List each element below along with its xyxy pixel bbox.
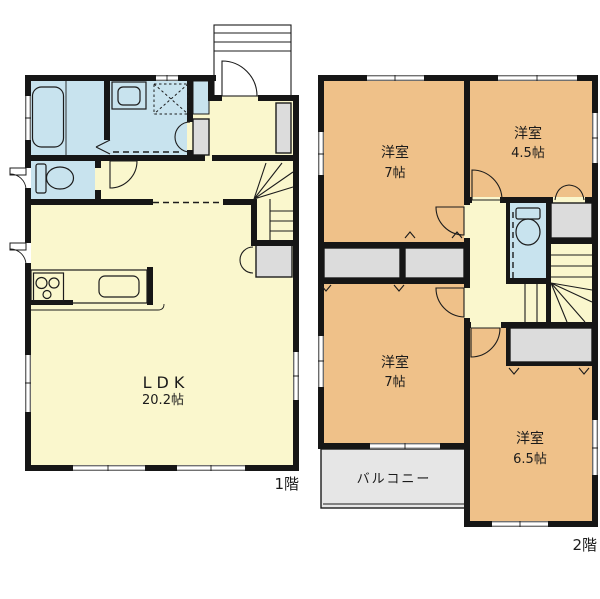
shoe-cabinet	[276, 103, 291, 153]
entrance-porch	[214, 25, 291, 96]
window	[73, 465, 145, 471]
room-sw-label: 洋室	[381, 354, 409, 371]
window	[367, 75, 424, 81]
window	[318, 336, 324, 387]
floor-1-plan: LDK 20.2帖 1階	[10, 25, 299, 493]
room-sw-size: 7帖	[384, 375, 405, 390]
window	[293, 352, 299, 400]
casement-window-icon	[10, 243, 31, 264]
casement-window-icon	[10, 168, 31, 189]
floor1-label: 1階	[274, 475, 299, 493]
closet-sw	[324, 248, 400, 278]
window	[370, 443, 440, 449]
room-nw-size: 7帖	[384, 166, 405, 181]
window	[25, 96, 31, 140]
room-ne-size: 4.5帖	[511, 146, 545, 161]
room-ne-label: 洋室	[514, 125, 542, 142]
window	[492, 521, 548, 527]
ldk-label: LDK	[143, 373, 190, 392]
hall-storage	[193, 119, 209, 155]
closet-nw	[405, 248, 464, 278]
window	[25, 355, 31, 412]
washroom-cabinet	[193, 81, 209, 114]
floor2-label: 2階	[572, 536, 597, 554]
floor-plan-canvas: LDK 20.2帖 1階	[0, 0, 600, 599]
closet-se	[510, 328, 592, 362]
window	[318, 132, 324, 175]
window	[592, 420, 598, 475]
floor-2-plan: 洋室 7帖 洋室 4.5帖 洋室 7帖 洋室 6.5帖 バルコニー 2階	[318, 75, 598, 554]
ldk-size-label: 20.2帖	[142, 393, 184, 408]
room-nw-label: 洋室	[381, 144, 409, 161]
window	[498, 75, 577, 81]
room-se-size: 6.5帖	[513, 452, 547, 467]
floor-plan-svg: LDK 20.2帖 1階	[0, 0, 600, 599]
window	[177, 465, 245, 471]
balcony-label: バルコニー	[357, 472, 432, 487]
window	[592, 113, 598, 163]
understairs-closet	[256, 245, 292, 277]
window	[156, 75, 178, 81]
room-se-label: 洋室	[516, 430, 544, 447]
room-nw	[324, 81, 464, 242]
closet-ne	[551, 203, 592, 238]
